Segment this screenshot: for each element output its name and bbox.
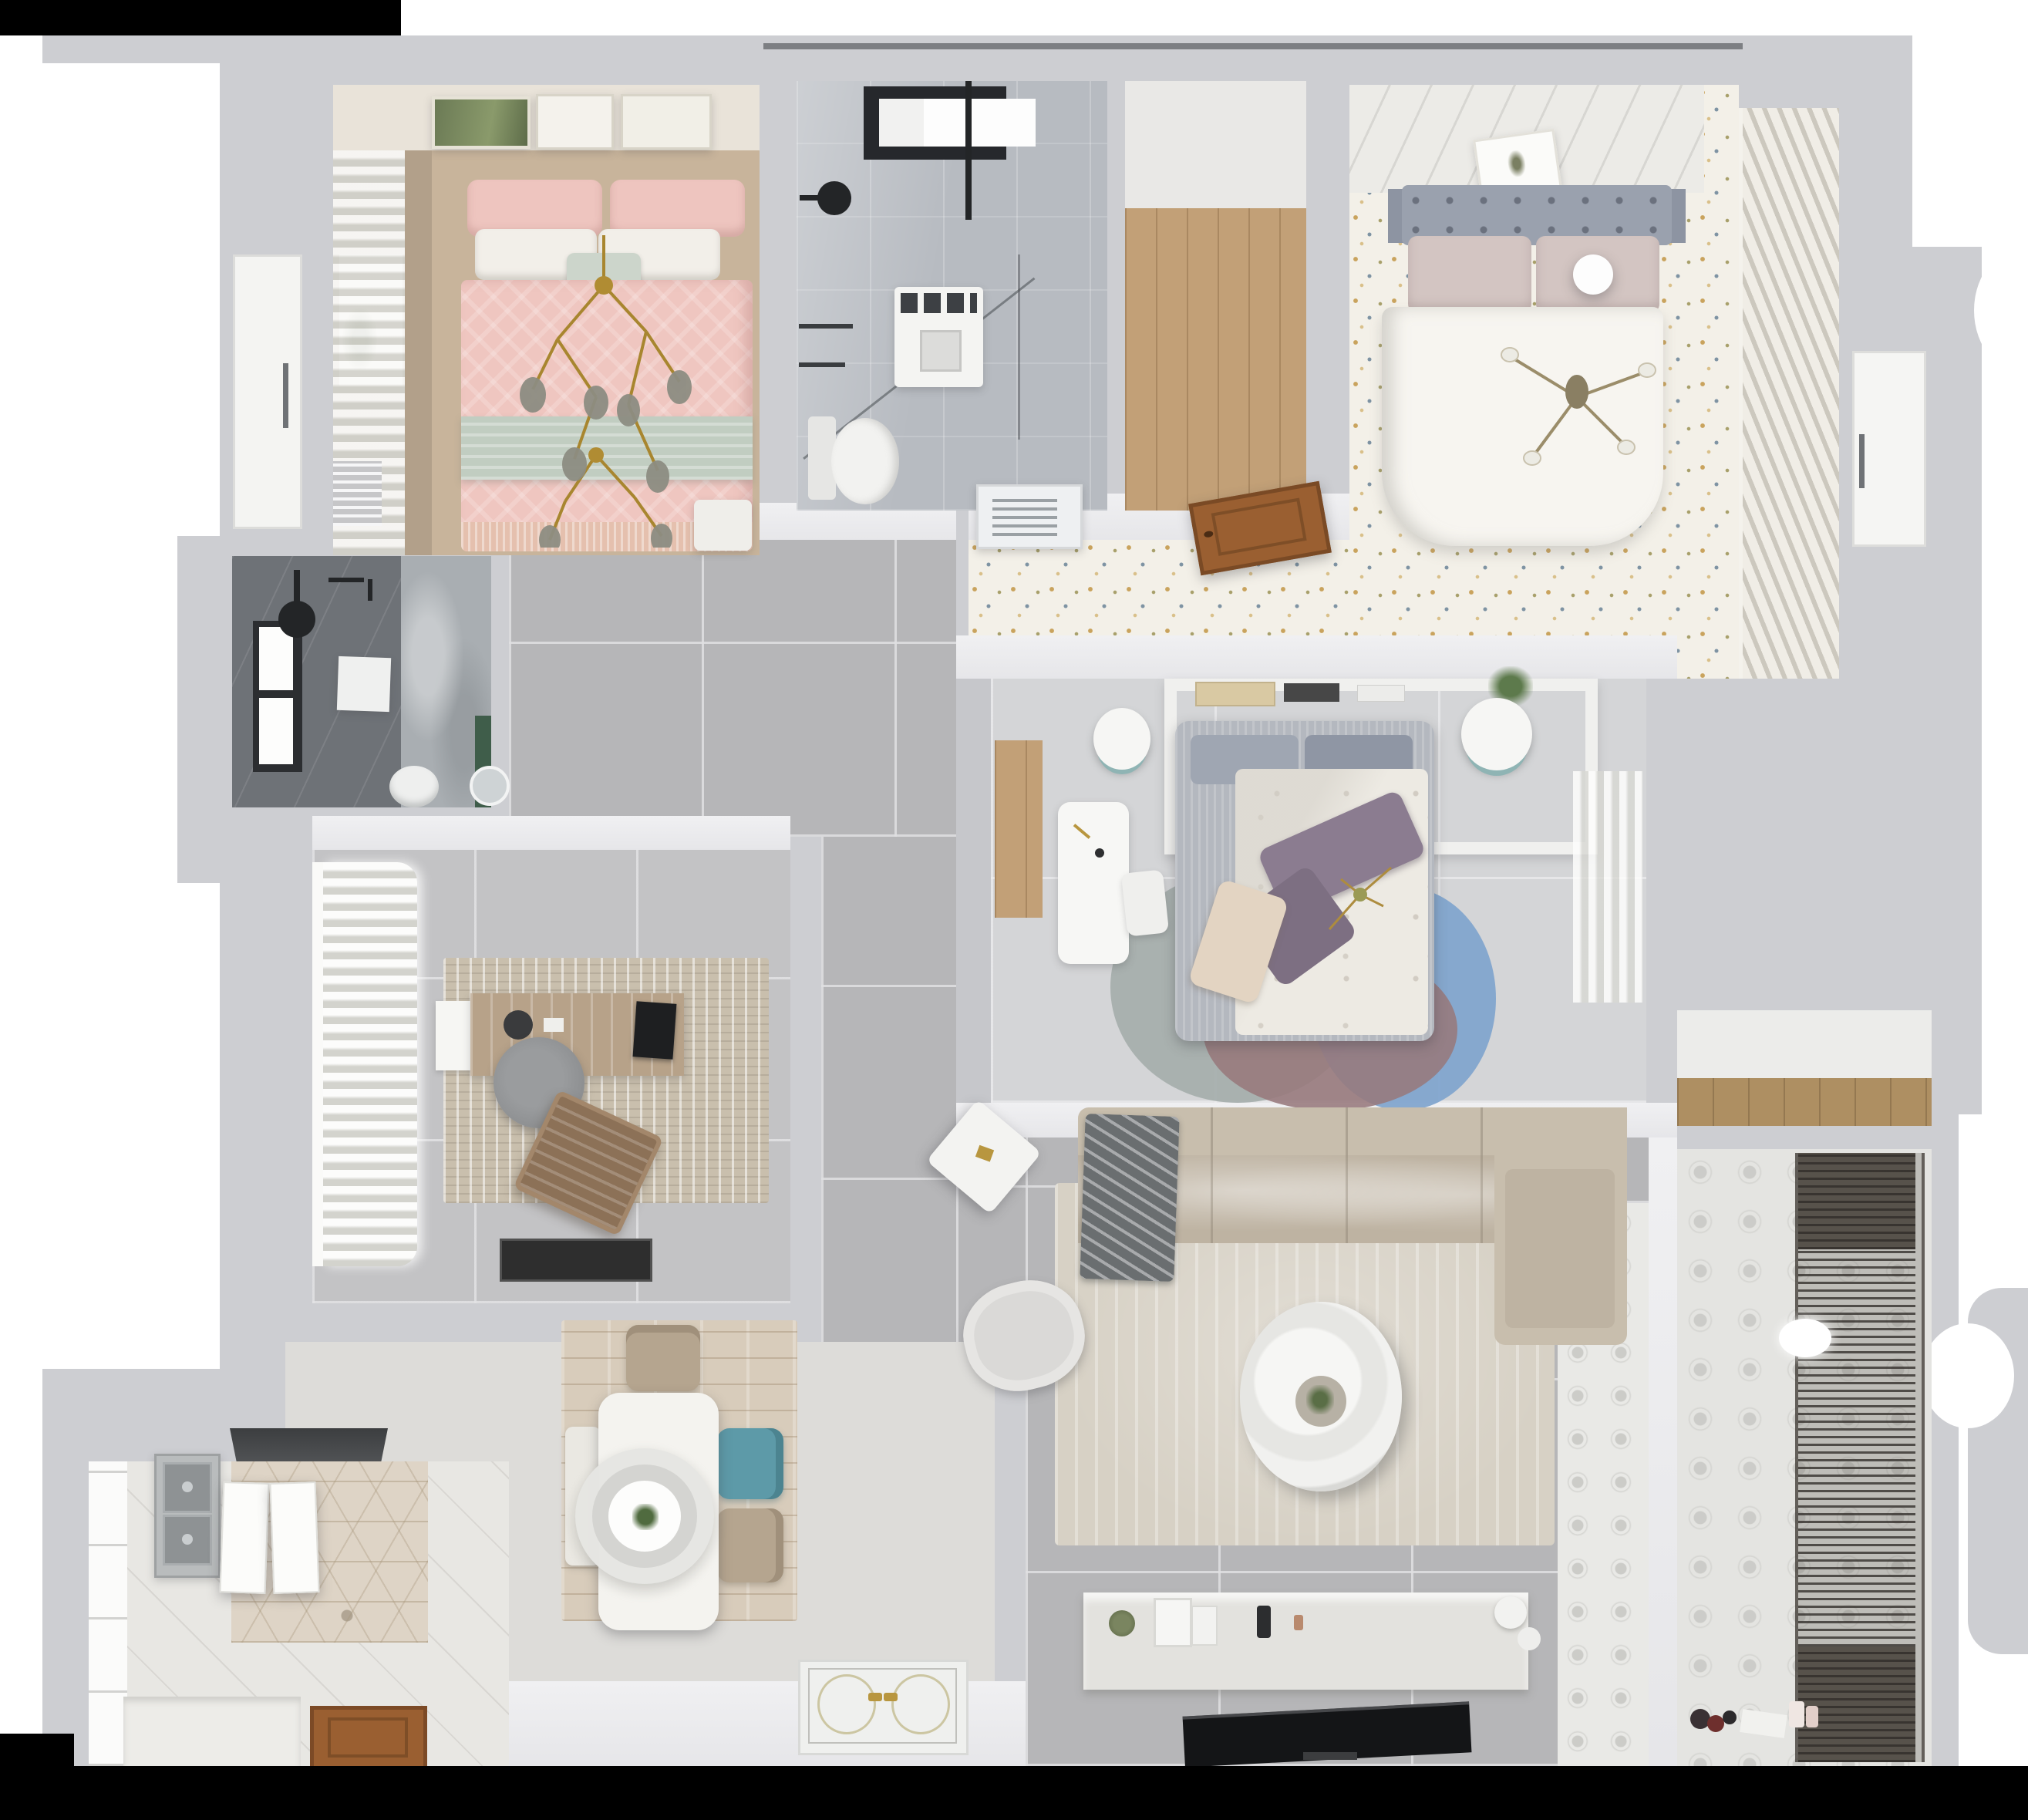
pink-pillow-right (610, 180, 745, 237)
bedroom3-wood-strip (995, 740, 1043, 918)
balcony-pendant-ball (1779, 1319, 1831, 1357)
chaise-cushion (1505, 1169, 1615, 1328)
tv-console (1083, 1592, 1528, 1690)
sofa-chaise (1494, 1107, 1627, 1345)
bathroom2-round-mirror (470, 766, 510, 806)
bedroom3-top-wall (956, 635, 1677, 679)
coffee-table-ring (1240, 1302, 1402, 1491)
console-photo-frame-1 (1154, 1598, 1192, 1647)
bedroom1-nightstand (694, 500, 752, 551)
bathroom2-fixture-stem (368, 579, 372, 601)
kitchen-counter (123, 1697, 301, 1766)
background-circle-artifact (31, 910, 135, 1014)
coffee-table-plant (1306, 1385, 1334, 1414)
wall-art-frame-sketch (621, 94, 712, 150)
room-home-office (312, 816, 790, 1303)
bedroom3-desk (1058, 802, 1129, 964)
window-pane-top (259, 627, 293, 690)
office-top-wall (312, 816, 790, 850)
sink-basin-2 (163, 1515, 212, 1566)
entry-front-door (798, 1660, 969, 1755)
console-vase-small (1518, 1627, 1541, 1650)
balcony-bottle-1 (1789, 1701, 1804, 1727)
desk-item-dot (1095, 848, 1104, 858)
side-table-gold-decor (975, 1145, 994, 1162)
bathroom2-shower-arm (294, 570, 300, 602)
bathroom2-fixture-bar (328, 578, 364, 582)
background-black-bottom-left (0, 1734, 74, 1820)
door-leaf-panel (1211, 498, 1307, 556)
shower-pipe (965, 81, 972, 220)
shelf-books-tan (1195, 682, 1275, 706)
closet-upper-floor (1125, 81, 1306, 208)
kitchen-window-wall (89, 1461, 127, 1766)
office-papers (436, 1001, 474, 1070)
washing-machine (894, 287, 983, 387)
room-bedroom-1 (333, 85, 760, 555)
washer-door (920, 330, 962, 372)
bedroom3-sheer-curtains (1573, 771, 1642, 1003)
shelf-books-dark (1284, 683, 1339, 702)
console-vase-large (1494, 1596, 1527, 1629)
room-bedroom-3 (956, 635, 1677, 1137)
bathroom2-shower-head (278, 601, 315, 638)
balcony-item-dark-2 (1723, 1710, 1737, 1724)
closet-wood-floor (1125, 208, 1306, 511)
bedroom3-left-wall (956, 679, 991, 1137)
bedroom2-four-arm-chandelier (1496, 324, 1658, 470)
bathroom2-white-door (233, 254, 302, 529)
background-cutout-top-right (1912, 35, 2028, 247)
sink-basin-1 (163, 1462, 212, 1513)
office-monitor (633, 1001, 677, 1059)
balcony-drying-rack (1795, 1153, 1925, 1762)
air-vent-grille (976, 484, 1083, 549)
bedroom1-bed (461, 174, 754, 551)
bedroom2-pillow-left (1408, 236, 1531, 313)
office-curtains (323, 862, 417, 1266)
door-leaf-handle (1204, 531, 1214, 538)
console-photo-frame-2 (1191, 1606, 1218, 1646)
door-panel-lines (808, 1668, 957, 1744)
shower-arm (800, 195, 820, 201)
wood-door-panel (328, 1717, 408, 1758)
kitchen-wood-door (310, 1706, 427, 1774)
bedroom1-radiator (333, 461, 382, 526)
wall-edge-shadow-top (763, 43, 1743, 49)
lit-wall-living-balcony (1649, 1127, 1677, 1766)
dining-chair-bottom (717, 1508, 783, 1582)
bedroom3-bed (1175, 721, 1434, 1041)
office-black-mat (500, 1239, 652, 1282)
gold-sprig (1314, 852, 1406, 945)
console-black-bottle (1257, 1606, 1271, 1638)
background-black-top (0, 0, 401, 35)
vent-slats (992, 494, 1057, 536)
rack-block-bottom (1798, 1646, 1915, 1762)
balcony-bottle-2 (1806, 1706, 1818, 1727)
shelf-books-white (1357, 685, 1405, 702)
hallway-floor-north (509, 540, 956, 837)
wall-art-frame-script (536, 94, 614, 150)
toilet-bowl (831, 418, 899, 504)
console-green-disc (1109, 1610, 1135, 1636)
door-handle-dark (283, 363, 288, 428)
kitchen-cabinet-door-1 (220, 1481, 270, 1594)
wall-art-frame-botanical (432, 96, 531, 149)
kitchen-cabinet-door-2 (270, 1481, 320, 1594)
office-desk-notebook (544, 1018, 564, 1032)
bedroom3-right-wall (1646, 679, 1677, 1137)
bathroom2-window (253, 621, 302, 772)
shower-shelf-bar-2 (799, 362, 845, 367)
art-plant-mark (1507, 150, 1528, 178)
shower-shelf-bar-1 (799, 324, 853, 329)
bedside-stool-left (1093, 708, 1150, 770)
rack-block-top (1798, 1153, 1915, 1249)
door-handle-gold-left (868, 1693, 882, 1701)
shower-head-black (817, 181, 851, 215)
hallway-floor-corridor (821, 837, 956, 1373)
console-candle (1294, 1615, 1303, 1630)
background-black-bottom (0, 1766, 2028, 1820)
sofa-throw-blanket (1080, 1114, 1179, 1282)
bathroom2-toilet (389, 766, 439, 807)
bedroom2-louvered-wardrobe (1739, 108, 1839, 679)
window-pane-bottom (259, 698, 293, 764)
kitchen-sink-unit (154, 1454, 221, 1578)
room-bathroom-2 (232, 556, 491, 807)
bedroom3-desk-chair (1121, 869, 1169, 936)
bedside-stool-right (1461, 698, 1532, 770)
corridor-door-handle (1859, 434, 1865, 488)
corridor-white-door (1852, 351, 1926, 547)
background-bite-right (1922, 1323, 2014, 1428)
room-kitchen (89, 1419, 509, 1766)
balcony-niche-white (1677, 1010, 1932, 1078)
tv-stand-bar (1303, 1752, 1357, 1760)
bathroom1-window-glass (879, 99, 1036, 147)
bedroom2-ball-lamp (1573, 254, 1613, 295)
bathroom2-art-square (337, 656, 391, 712)
glass-partition-side (1018, 254, 1020, 440)
dining-chair-teal (717, 1428, 783, 1499)
dining-chair-top (626, 1325, 700, 1391)
floor-plan-canvas (0, 0, 2028, 1820)
coffee-table-hole (1295, 1376, 1346, 1427)
room-bathroom-1 (797, 81, 1107, 511)
room-bedroom-2 (1349, 85, 1847, 679)
room-walk-in-closet (1125, 81, 1306, 511)
washer-control-panel (901, 293, 977, 313)
wall-top-band (42, 35, 220, 63)
pink-pillow-left (467, 180, 602, 237)
door-handle-gold-right (884, 1693, 898, 1701)
desk-pens-gold (1073, 824, 1090, 839)
balcony-item-red (1707, 1715, 1724, 1732)
background-notch-right (1974, 243, 2028, 378)
pendant-lamp-plant (632, 1504, 659, 1530)
office-desk-speaker (504, 1010, 533, 1040)
gold-branch-chandelier (504, 231, 704, 548)
balcony-wood-shelf (1677, 1078, 1932, 1126)
